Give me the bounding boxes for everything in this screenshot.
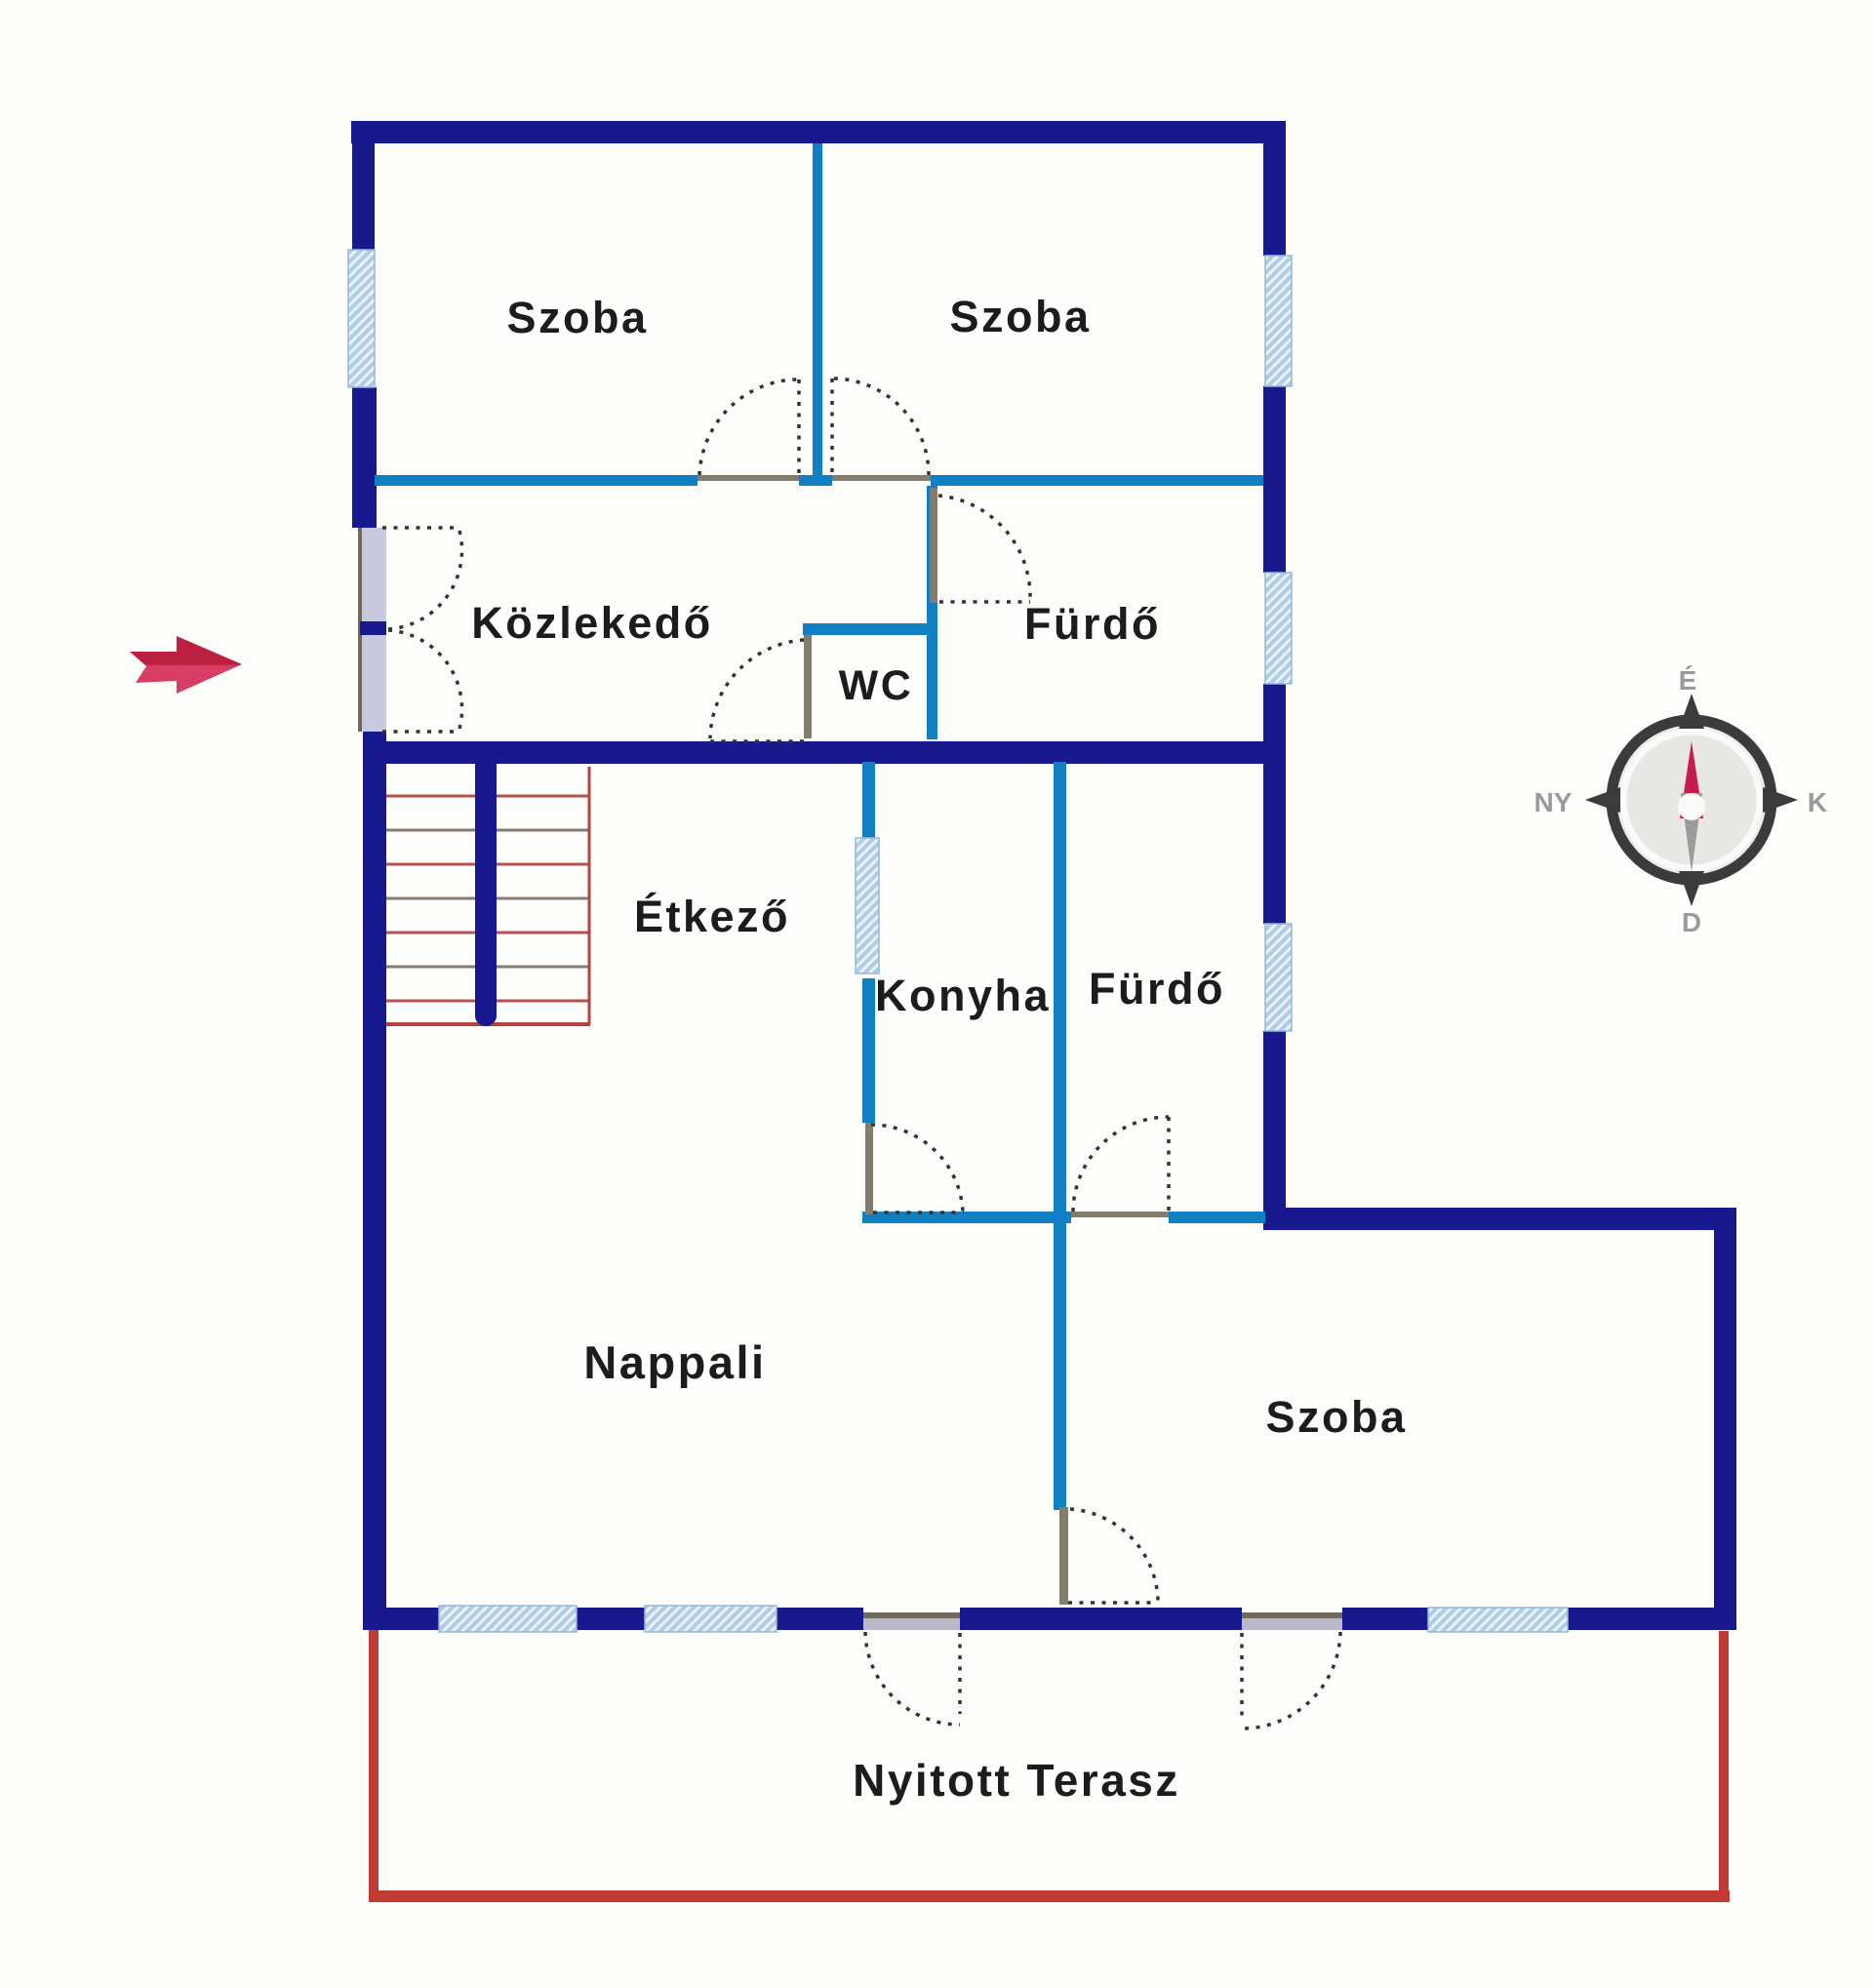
- svg-text:Fürdő: Fürdő: [1024, 599, 1161, 649]
- svg-text:Nappali: Nappali: [583, 1336, 766, 1388]
- svg-text:Nyitott Terasz: Nyitott Terasz: [853, 1755, 1180, 1806]
- svg-text:K: K: [1808, 787, 1827, 817]
- svg-text:D: D: [1682, 907, 1701, 937]
- svg-text:Konyha: Konyha: [875, 971, 1051, 1020]
- svg-text:Szoba: Szoba: [949, 292, 1091, 341]
- svg-text:NY: NY: [1534, 787, 1573, 817]
- svg-text:WC: WC: [839, 662, 914, 709]
- svg-text:É: É: [1679, 665, 1697, 696]
- svg-text:Szoba: Szoba: [1265, 1392, 1407, 1442]
- svg-text:Fürdő: Fürdő: [1089, 964, 1225, 1014]
- svg-text:Közlekedő: Közlekedő: [471, 598, 713, 648]
- svg-text:Étkező: Étkező: [634, 892, 790, 941]
- svg-text:Szoba: Szoba: [506, 293, 648, 342]
